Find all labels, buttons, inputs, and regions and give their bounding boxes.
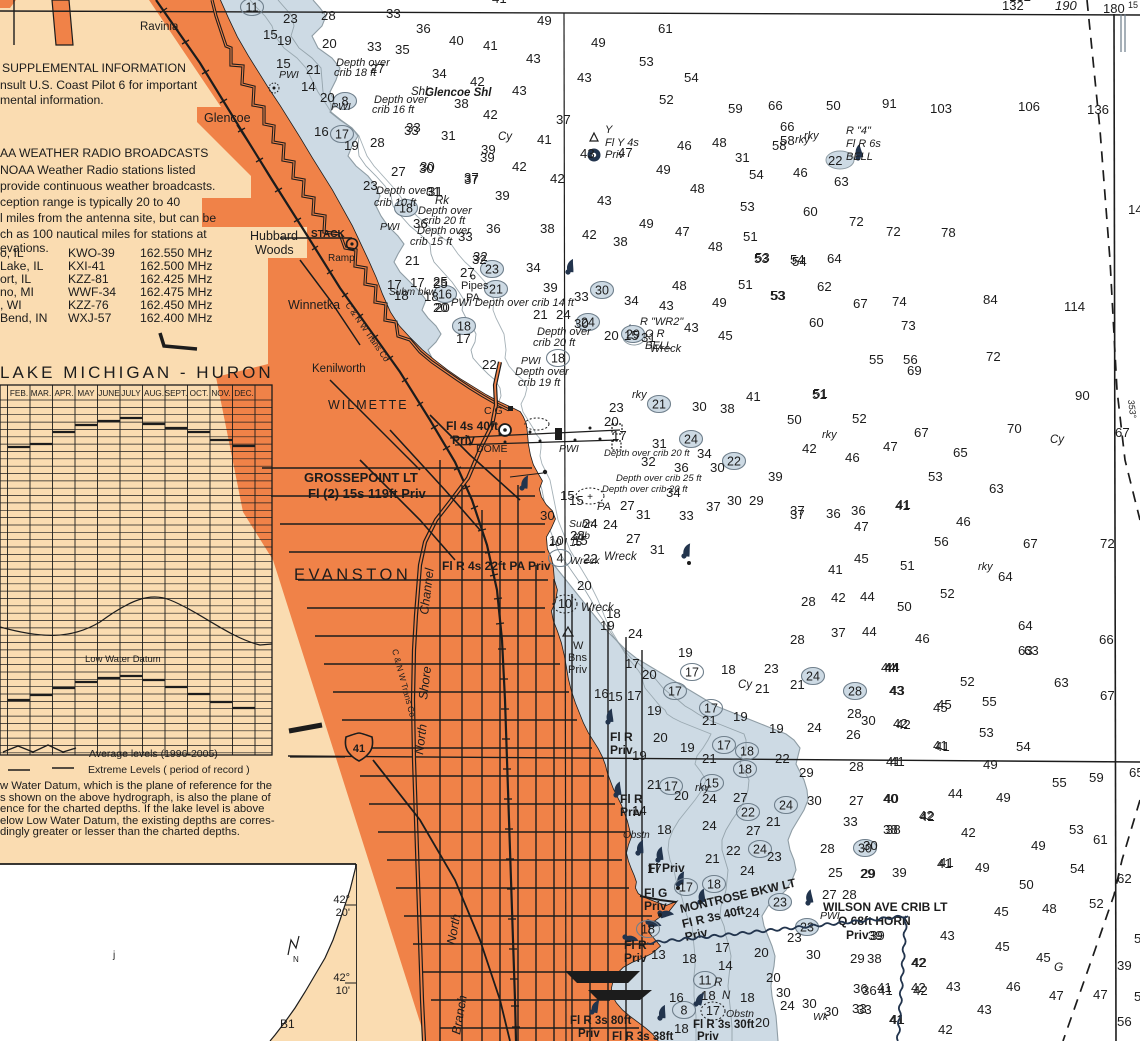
svg-text:DEC.: DEC. (234, 389, 254, 398)
svg-text:APR.: APR. (54, 389, 73, 398)
svg-text:ort, IL: ort, IL (0, 272, 31, 286)
svg-text:17: 17 (717, 739, 731, 753)
svg-text:30: 30 (863, 838, 878, 853)
svg-text:R "4": R "4" (846, 125, 872, 137)
svg-text:34: 34 (432, 66, 447, 81)
svg-text:20: 20 (642, 667, 657, 682)
svg-text:21: 21 (405, 253, 420, 268)
svg-text:55: 55 (1134, 931, 1140, 946)
svg-text:70: 70 (1007, 421, 1022, 436)
svg-text:19: 19 (647, 703, 662, 718)
svg-text:18: 18 (551, 352, 565, 366)
svg-text:23: 23 (767, 849, 782, 864)
svg-text:GROSSEPOINT LT: GROSSEPOINT LT (304, 470, 418, 485)
svg-text:33: 33 (857, 1002, 872, 1017)
svg-text:41: 41 (537, 132, 552, 147)
svg-text:42: 42 (938, 1022, 953, 1037)
svg-text:51: 51 (900, 558, 915, 573)
svg-text:20: 20 (766, 970, 781, 985)
svg-text:Priv: Priv (578, 1028, 600, 1040)
svg-text:G: G (1054, 960, 1063, 974)
svg-text:20: 20 (755, 1015, 770, 1030)
svg-text:20: 20 (322, 36, 337, 51)
svg-text:42: 42 (512, 159, 527, 174)
svg-text:66: 66 (768, 98, 783, 113)
svg-text:54: 54 (1016, 739, 1031, 754)
svg-text:27: 27 (620, 498, 635, 513)
svg-text:18: 18 (738, 763, 752, 777)
svg-text:44: 44 (860, 589, 875, 604)
svg-text:62: 62 (1117, 871, 1132, 886)
svg-text:WXJ-57: WXJ-57 (68, 311, 112, 325)
svg-text:39: 39 (480, 150, 495, 165)
svg-text:17: 17 (456, 331, 471, 346)
svg-text:33: 33 (843, 814, 858, 829)
svg-text:45: 45 (995, 939, 1010, 954)
svg-text:rky: rky (822, 429, 838, 441)
svg-text:43: 43 (659, 298, 674, 313)
svg-text:37: 37 (464, 170, 479, 185)
svg-text:190: 190 (1055, 0, 1077, 13)
svg-text:53: 53 (754, 251, 769, 266)
svg-text:o, IL: o, IL (0, 246, 24, 260)
svg-text:45: 45 (933, 700, 948, 715)
svg-text:nsult U.S. Coast Pilot 6: nsult U.S. Coast Pilot 6 for important (0, 78, 198, 92)
svg-text:30: 30 (692, 399, 707, 414)
svg-text:22: 22 (482, 357, 497, 372)
svg-text:37: 37 (706, 499, 721, 514)
svg-text:42: 42 (961, 825, 976, 840)
svg-text:21: 21 (790, 677, 805, 692)
svg-text:63: 63 (834, 174, 849, 189)
svg-text:106: 106 (1018, 99, 1040, 114)
svg-text:41: 41 (886, 754, 901, 769)
svg-text:20: 20 (433, 300, 448, 315)
svg-text:54: 54 (1070, 861, 1085, 876)
svg-text:64: 64 (1018, 618, 1033, 633)
svg-text:Fl R 6s: Fl R 6s (846, 138, 881, 150)
svg-text:provide continuous weather bro: provide continuous weather broadcasts. (0, 179, 215, 193)
svg-text:52: 52 (852, 411, 867, 426)
svg-text:16: 16 (594, 686, 609, 701)
svg-text:Wreck: Wreck (650, 343, 682, 355)
svg-text:Priv: Priv (620, 805, 643, 819)
svg-text:47: 47 (1049, 988, 1064, 1003)
svg-text:N: N (293, 955, 299, 964)
svg-text:Depth over crib 20 ft: Depth over crib 20 ft (602, 484, 688, 495)
svg-text:Ramp: Ramp (328, 253, 355, 264)
svg-text:17: 17 (668, 685, 682, 699)
svg-text:56: 56 (934, 534, 949, 549)
svg-text:19: 19 (632, 748, 647, 763)
svg-text:Fl 4s 40ft: Fl 4s 40ft (446, 419, 498, 433)
svg-text:40: 40 (883, 791, 898, 806)
svg-text:37: 37 (831, 625, 846, 640)
svg-text:28: 28 (790, 632, 805, 647)
svg-text:Cy: Cy (738, 679, 753, 691)
svg-text:AA WEATHER RADIO BROADCASTS: AA WEATHER RADIO BROADCASTS (0, 146, 208, 160)
svg-text:24: 24 (628, 626, 643, 641)
svg-text:Glencoe: Glencoe (204, 111, 251, 125)
svg-text:38: 38 (540, 221, 555, 236)
svg-text:46: 46 (956, 514, 971, 529)
svg-text:28: 28 (820, 841, 835, 856)
svg-text:20': 20' (336, 907, 350, 919)
svg-text:18: 18 (682, 951, 697, 966)
svg-text:14: 14 (301, 79, 316, 94)
svg-text:53: 53 (740, 199, 755, 214)
svg-text:Bend, IN: Bend, IN (0, 311, 47, 325)
svg-text:28: 28 (370, 135, 385, 150)
svg-text:49: 49 (983, 757, 998, 772)
svg-text:50: 50 (787, 412, 802, 427)
svg-text:Average levels (1996-2005): Average levels (1996-2005) (89, 748, 218, 760)
svg-text:42°: 42° (333, 972, 350, 984)
svg-text:33: 33 (679, 508, 694, 523)
svg-text:43: 43 (940, 928, 955, 943)
svg-text:MAY: MAY (77, 389, 95, 398)
svg-text:crib 16 ft: crib 16 ft (372, 104, 415, 116)
svg-text:22: 22 (775, 751, 790, 766)
svg-text:Priv: Priv (624, 951, 647, 965)
svg-text:Glencoe Shl: Glencoe Shl (425, 87, 492, 99)
svg-text:61: 61 (1093, 832, 1108, 847)
svg-text:49: 49 (996, 790, 1011, 805)
svg-text:33: 33 (406, 120, 421, 135)
svg-text:47: 47 (883, 439, 898, 454)
svg-text:39: 39 (543, 280, 558, 295)
svg-text:21: 21 (702, 751, 717, 766)
svg-text:41: 41 (746, 389, 761, 404)
svg-text:crib 19 ft: crib 19 ft (518, 377, 561, 389)
svg-text:44: 44 (862, 624, 877, 639)
svg-text:44: 44 (948, 786, 963, 801)
svg-text:39: 39 (892, 865, 907, 880)
svg-text:49: 49 (591, 35, 606, 50)
svg-text:72: 72 (1100, 536, 1115, 551)
svg-text:40: 40 (449, 33, 464, 48)
svg-text:MAR.: MAR. (31, 389, 51, 398)
svg-text:49: 49 (975, 860, 990, 875)
svg-text:Fl R: Fl R (620, 792, 643, 806)
svg-text:19: 19 (733, 709, 748, 724)
svg-text:43: 43 (580, 146, 595, 161)
svg-text:rky: rky (632, 389, 648, 401)
svg-text:B1: B1 (280, 1017, 295, 1031)
svg-text:24: 24 (684, 433, 698, 447)
svg-text:36: 36 (862, 983, 877, 998)
svg-text:27: 27 (733, 790, 748, 805)
svg-text:crib 20 ft: crib 20 ft (533, 337, 576, 349)
svg-text:33: 33 (574, 289, 589, 304)
svg-text:SUPPLEMENTAL INFORMATION: SUPPLEMENTAL INFORMATION (2, 61, 186, 75)
svg-text:Fl R: Fl R (624, 938, 647, 952)
svg-text:Depth over crib 20 ft: Depth over crib 20 ft (604, 448, 690, 459)
svg-text:42: 42 (582, 227, 597, 242)
svg-text:67: 67 (1023, 536, 1038, 551)
svg-text:10: 10 (558, 597, 572, 611)
svg-text:24: 24 (745, 905, 760, 920)
svg-text:42: 42 (912, 955, 927, 970)
svg-text:50: 50 (1019, 877, 1034, 892)
svg-text:17: 17 (627, 688, 642, 703)
svg-text:Y: Y (605, 124, 613, 136)
svg-text:17: 17 (679, 881, 693, 895)
svg-text:Obstn: Obstn (623, 830, 650, 841)
svg-text:30: 30 (806, 947, 821, 962)
svg-text:52: 52 (1089, 896, 1104, 911)
svg-text:l miles from the antenna site,: l miles from the antenna site, but can b… (0, 211, 216, 225)
svg-text:45: 45 (854, 551, 869, 566)
svg-text:Fl R 3s 80ft: Fl R 3s 80ft (570, 1015, 632, 1027)
svg-text:22: 22 (741, 806, 755, 820)
svg-text:WILMETTE: WILMETTE (328, 398, 409, 412)
svg-text:45: 45 (1036, 950, 1051, 965)
svg-text:Fl R 3s 38ft: Fl R 3s 38ft (612, 1031, 674, 1041)
svg-text:37: 37 (790, 507, 805, 522)
svg-text:KXI-41: KXI-41 (68, 259, 105, 273)
svg-text:rky: rky (804, 130, 820, 142)
svg-text:39: 39 (1117, 958, 1132, 973)
svg-text:49: 49 (712, 295, 727, 310)
svg-text:20: 20 (577, 578, 592, 593)
svg-text:65: 65 (1129, 765, 1140, 780)
svg-text:49: 49 (1031, 838, 1046, 853)
svg-text:31: 31 (650, 542, 665, 557)
svg-text:Priv: Priv (846, 928, 869, 942)
svg-text:47: 47 (675, 224, 690, 239)
svg-text:30: 30 (540, 508, 555, 523)
svg-text:20: 20 (674, 788, 689, 803)
svg-text:54: 54 (749, 167, 764, 182)
svg-text:67: 67 (914, 425, 929, 440)
svg-text:15: 15 (1128, 0, 1138, 10)
svg-text:27: 27 (626, 531, 641, 546)
svg-text:22: 22 (726, 843, 741, 858)
svg-text:19: 19 (600, 618, 615, 633)
svg-text:39: 39 (495, 188, 510, 203)
svg-text:61: 61 (658, 21, 673, 36)
svg-text:KZZ-81: KZZ-81 (68, 272, 109, 286)
svg-text:EVANSTON: EVANSTON (294, 566, 411, 584)
svg-text:20: 20 (604, 328, 619, 343)
svg-text:28: 28 (321, 8, 336, 23)
svg-text:18: 18 (740, 990, 755, 1005)
svg-text:BELL: BELL (846, 151, 873, 163)
svg-text:50: 50 (897, 599, 912, 614)
svg-text:42: 42 (893, 716, 908, 731)
svg-text:31: 31 (441, 128, 456, 143)
svg-text:31: 31 (735, 150, 750, 165)
svg-text:46: 46 (1006, 979, 1021, 994)
svg-text:22: 22 (727, 455, 741, 469)
svg-text:4: 4 (557, 552, 564, 566)
svg-text:ence for the charted depths.: ence for the charted depths. If the lake… (0, 803, 264, 815)
svg-text:15: 15 (624, 328, 639, 343)
svg-text:66: 66 (1099, 632, 1114, 647)
svg-text:ch as 100 nautical miles for s: ch as 100 nautical miles for stations at (0, 227, 207, 241)
svg-text:29: 29 (850, 951, 865, 966)
svg-text:15: 15 (608, 689, 623, 704)
svg-text:78: 78 (941, 225, 956, 240)
svg-text:rky: rky (978, 561, 994, 573)
svg-text:27: 27 (460, 265, 475, 280)
svg-text:36: 36 (486, 221, 501, 236)
svg-text:30: 30 (802, 996, 817, 1011)
svg-text:39: 39 (768, 469, 783, 484)
svg-text:46: 46 (793, 165, 808, 180)
svg-text:30: 30 (861, 713, 876, 728)
svg-text:PA: PA (597, 501, 611, 513)
svg-text:41: 41 (483, 38, 498, 53)
svg-text:30: 30 (727, 493, 742, 508)
svg-text:41: 41 (492, 0, 507, 6)
svg-text:36: 36 (826, 506, 841, 521)
svg-text:84: 84 (983, 292, 998, 307)
svg-text:17: 17 (625, 656, 640, 671)
svg-text:35: 35 (395, 42, 410, 57)
svg-text:72: 72 (849, 214, 864, 229)
svg-text:38: 38 (613, 234, 628, 249)
svg-text:42: 42 (550, 171, 565, 186)
svg-text:23: 23 (787, 930, 802, 945)
svg-text:21: 21 (647, 777, 662, 792)
svg-text:22: 22 (828, 153, 842, 168)
svg-text:26: 26 (846, 727, 861, 742)
svg-text:45: 45 (718, 328, 733, 343)
svg-text:132: 132 (1002, 0, 1024, 13)
svg-text:STACK: STACK (311, 229, 345, 240)
svg-text:Bns: Bns (568, 652, 587, 664)
svg-text:j: j (112, 950, 115, 961)
svg-text:114: 114 (1064, 299, 1085, 314)
svg-text:Extreme Levels ( period of: Extreme Levels ( period of record ) (88, 764, 250, 776)
svg-text:JUNE: JUNE (98, 389, 120, 398)
svg-text:23: 23 (773, 896, 787, 910)
svg-text:JULY: JULY (121, 389, 141, 398)
svg-text:30: 30 (595, 284, 609, 298)
svg-text:20: 20 (653, 730, 668, 745)
svg-text:21: 21 (533, 307, 548, 322)
svg-text:PA: PA (466, 292, 481, 304)
svg-text:46: 46 (845, 450, 860, 465)
svg-text:91: 91 (882, 96, 897, 111)
svg-text:Cy: Cy (1050, 434, 1065, 446)
svg-text:18: 18 (674, 1021, 689, 1036)
svg-text:52: 52 (940, 586, 955, 601)
svg-text:21: 21 (489, 283, 503, 297)
svg-text:mental information.: mental information. (0, 93, 104, 107)
svg-text:N: N (722, 990, 731, 1002)
svg-text:Cy: Cy (498, 131, 513, 143)
svg-text:Pipes: Pipes (461, 280, 489, 292)
svg-text:Kenilworth: Kenilworth (312, 363, 366, 375)
svg-text:dingly greater or lesser than: dingly greater or lesser than the charte… (0, 826, 240, 838)
svg-text:28: 28 (849, 759, 864, 774)
svg-text:47: 47 (854, 519, 869, 534)
svg-text:no, MI: no, MI (0, 285, 34, 299)
svg-text:19: 19 (277, 33, 292, 48)
svg-text:Fl R 4s 22ft PA Priv: Fl R 4s 22ft PA Priv (442, 559, 551, 573)
svg-text:21: 21 (755, 681, 770, 696)
svg-text:162.400 MHz: 162.400 MHz (140, 311, 213, 325)
svg-text:Ravinia: Ravinia (140, 21, 179, 33)
svg-text:11: 11 (246, 1, 259, 15)
svg-text:Rk: Rk (435, 195, 450, 207)
svg-text:53: 53 (639, 54, 654, 69)
svg-text:53: 53 (979, 725, 994, 740)
svg-text:25: 25 (828, 865, 843, 880)
svg-text:42°: 42° (333, 894, 350, 906)
svg-text:33: 33 (386, 6, 401, 21)
svg-text:30: 30 (420, 159, 435, 174)
svg-text:28: 28 (848, 685, 862, 699)
svg-text:55: 55 (869, 352, 884, 367)
svg-text:18: 18 (721, 662, 736, 677)
svg-text:Wreck: Wreck (570, 555, 600, 567)
svg-text:13: 13 (651, 947, 666, 962)
svg-text:41: 41 (353, 743, 365, 755)
svg-text:8: 8 (681, 1004, 688, 1018)
svg-text:162.425 MHz: 162.425 MHz (140, 272, 213, 286)
svg-text:39: 39 (868, 928, 883, 943)
svg-text:23: 23 (609, 400, 624, 415)
svg-text:48: 48 (1042, 901, 1057, 916)
svg-text:24: 24 (806, 670, 820, 684)
svg-text:NOV.: NOV. (211, 389, 230, 398)
svg-text:C G: C G (484, 405, 503, 417)
svg-text:21: 21 (705, 851, 720, 866)
svg-text:180: 180 (1103, 1, 1125, 16)
svg-text:SEPT.: SEPT. (165, 389, 188, 398)
svg-text:55: 55 (1052, 775, 1067, 790)
svg-text:53: 53 (1069, 822, 1084, 837)
svg-text:43: 43 (512, 83, 527, 98)
svg-text:14: 14 (718, 958, 733, 973)
svg-text:27: 27 (849, 793, 864, 808)
svg-text:17: 17 (706, 1004, 720, 1018)
svg-text:Fl Priv: Fl Priv (648, 861, 685, 875)
svg-text:FEB.: FEB. (10, 389, 28, 398)
svg-text:21: 21 (766, 814, 781, 829)
svg-text:KWO-39: KWO-39 (68, 246, 115, 260)
svg-text:144: 144 (1128, 202, 1140, 217)
svg-text:51: 51 (813, 386, 828, 401)
svg-text:Lake, IL: Lake, IL (0, 259, 44, 273)
svg-text:41: 41 (878, 983, 893, 998)
svg-text:43: 43 (684, 320, 699, 335)
svg-text:72: 72 (886, 224, 901, 239)
svg-text:42: 42 (919, 808, 934, 823)
svg-text:Priv: Priv (568, 664, 587, 676)
svg-text:17: 17 (715, 940, 730, 955)
svg-text:69: 69 (907, 363, 922, 378)
svg-text:47: 47 (1093, 987, 1108, 1002)
svg-text:53: 53 (1134, 989, 1140, 1004)
svg-text:49: 49 (537, 13, 552, 28)
svg-text:19: 19 (678, 645, 693, 660)
svg-text:28: 28 (801, 594, 816, 609)
svg-text:60: 60 (803, 204, 818, 219)
svg-text:rky: rky (695, 782, 711, 794)
svg-text:21: 21 (306, 62, 321, 77)
svg-text:18: 18 (701, 988, 716, 1003)
svg-text:42: 42 (802, 441, 817, 456)
svg-text:23: 23 (485, 263, 499, 277)
svg-text:28: 28 (847, 706, 862, 721)
svg-text:ception range is typically: ception range is typically 20 to 40 (0, 195, 180, 209)
svg-text:53: 53 (928, 469, 943, 484)
